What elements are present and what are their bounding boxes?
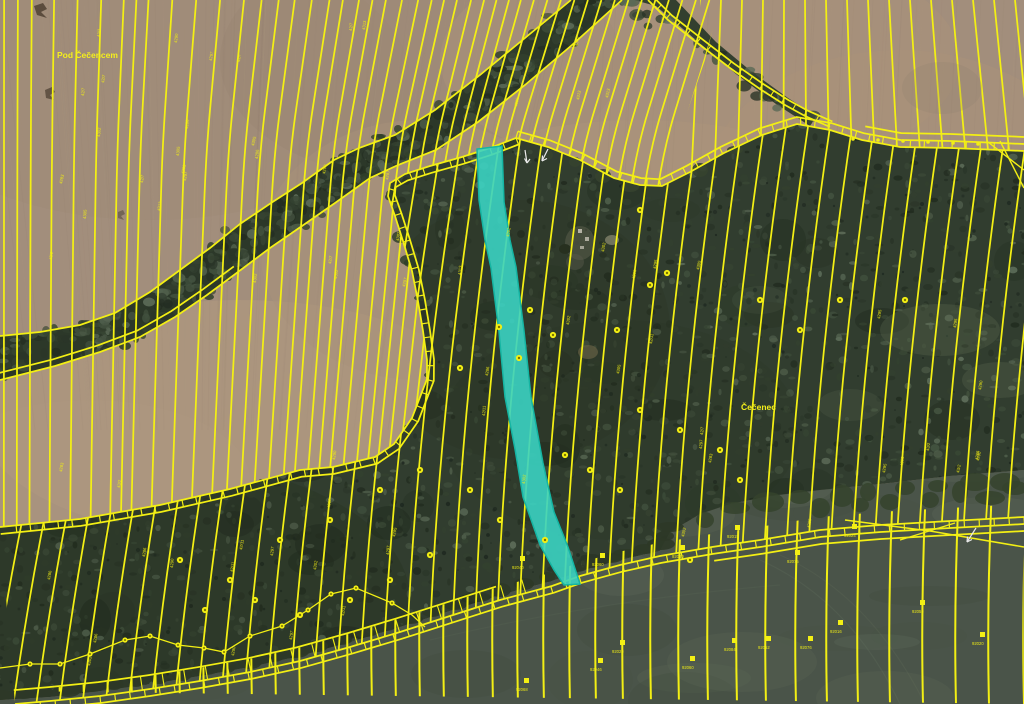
svg-text:42/7: 42/7: [699, 426, 705, 435]
svg-text:42/11: 42/11: [481, 405, 487, 416]
svg-text:92060: 92060: [682, 665, 694, 670]
svg-text:92084: 92084: [724, 647, 736, 652]
svg-text:92020: 92020: [972, 641, 984, 646]
svg-text:42/7: 42/7: [236, 53, 242, 62]
svg-text:42/7: 42/7: [348, 22, 354, 31]
svg-text:4297: 4297: [385, 545, 391, 555]
svg-text:92075: 92075: [787, 559, 799, 564]
svg-text:92046: 92046: [590, 667, 602, 672]
svg-text:4290: 4290: [169, 558, 175, 568]
svg-text:4295: 4295: [899, 456, 905, 466]
svg-text:4297: 4297: [269, 546, 275, 556]
svg-text:92040: 92040: [512, 565, 524, 570]
svg-text:92050: 92050: [912, 609, 924, 614]
svg-text:43/2: 43/2: [96, 28, 102, 37]
svg-text:42/7: 42/7: [139, 174, 145, 183]
svg-text:4302: 4302: [252, 273, 258, 283]
svg-text:4302: 4302: [96, 127, 102, 137]
svg-text:92024: 92024: [844, 533, 856, 538]
svg-text:43/2: 43/2: [48, 251, 54, 260]
svg-text:4297: 4297: [698, 439, 704, 449]
svg-text:92076: 92076: [800, 645, 812, 650]
svg-text:4305: 4305: [574, 36, 580, 46]
svg-text:4286: 4286: [184, 119, 190, 129]
svg-text:Čečenec: Čečenec: [741, 401, 776, 412]
svg-text:4302: 4302: [333, 269, 339, 279]
svg-text:92052: 92052: [758, 645, 770, 650]
svg-text:4313: 4313: [457, 265, 463, 275]
svg-text:4305: 4305: [82, 209, 88, 219]
svg-text:4290: 4290: [173, 33, 179, 43]
svg-text:4286: 4286: [254, 149, 260, 159]
svg-text:4305: 4305: [175, 146, 181, 156]
svg-text:92068: 92068: [516, 687, 528, 692]
svg-text:42/7: 42/7: [80, 87, 86, 96]
svg-text:92080: 92080: [672, 554, 684, 559]
svg-text:Pod Čečencem: Pod Čečencem: [57, 49, 118, 60]
svg-text:4302: 4302: [521, 474, 527, 484]
svg-text:92060: 92060: [592, 562, 604, 567]
svg-text:92020: 92020: [612, 649, 624, 654]
svg-text:92016: 92016: [830, 629, 842, 634]
svg-text:92015: 92015: [727, 534, 739, 539]
